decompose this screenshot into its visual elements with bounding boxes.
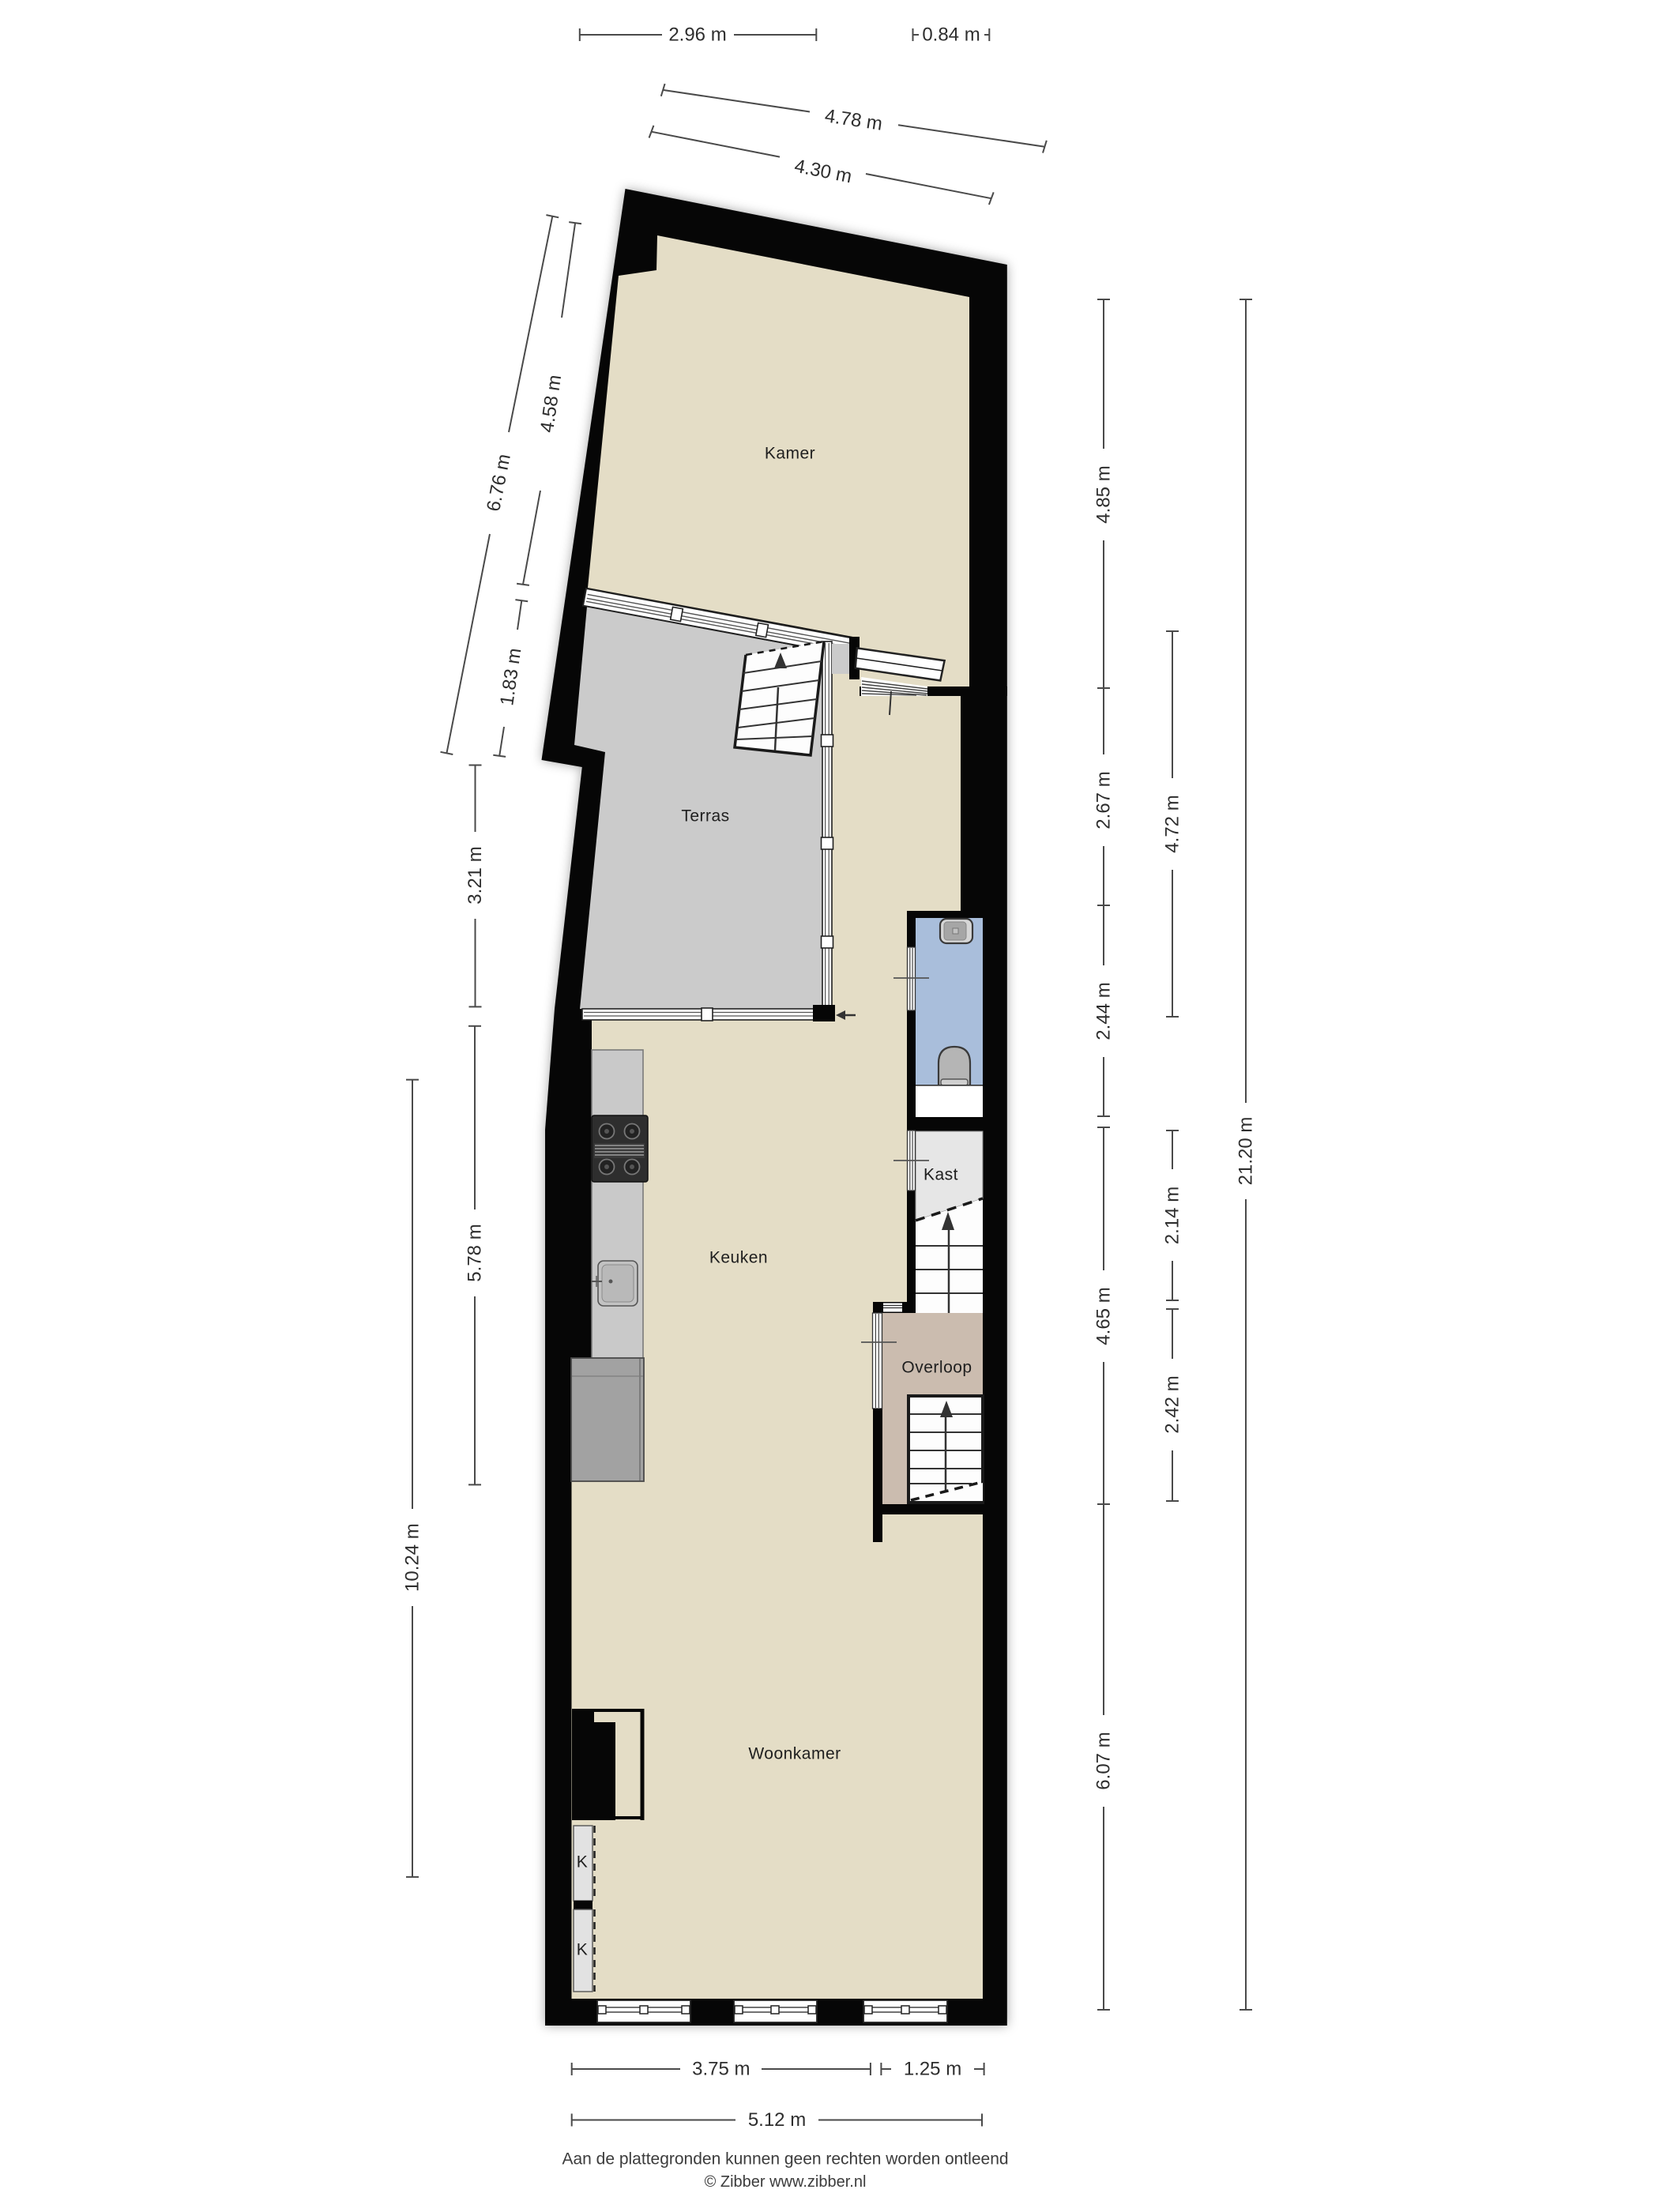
svg-text:© Zibber www.zibber.nl: © Zibber www.zibber.nl [705, 2173, 867, 2191]
svg-text:1.25 m: 1.25 m [904, 2059, 961, 2080]
svg-text:5.12 m: 5.12 m [748, 2109, 806, 2131]
svg-text:K: K [577, 1853, 589, 1872]
svg-text:0.84 m: 0.84 m [922, 24, 980, 46]
svg-text:5.78 m: 5.78 m [465, 1224, 486, 1281]
svg-text:Aan de plattegronden kunnen ge: Aan de plattegronden kunnen geen rechten… [562, 2150, 1008, 2169]
svg-text:Kamer: Kamer [765, 445, 815, 463]
svg-text:Terras: Terras [681, 807, 729, 826]
svg-text:6.07 m: 6.07 m [1093, 1732, 1115, 1789]
svg-text:2.14 m: 2.14 m [1162, 1187, 1183, 1244]
svg-text:Keuken: Keuken [709, 1249, 768, 1267]
svg-text:Overloop: Overloop [901, 1359, 972, 1377]
svg-text:Kast: Kast [924, 1166, 958, 1184]
svg-text:4.65 m: 4.65 m [1093, 1287, 1115, 1345]
svg-text:2.96 m: 2.96 m [668, 24, 726, 46]
svg-text:10.24 m: 10.24 m [402, 1523, 423, 1592]
svg-text:4.72 m: 4.72 m [1162, 795, 1183, 852]
svg-text:K: K [577, 1941, 589, 1959]
svg-text:2.42 m: 2.42 m [1162, 1375, 1183, 1433]
svg-text:2.67 m: 2.67 m [1093, 771, 1115, 829]
svg-text:Woonkamer: Woonkamer [748, 1745, 841, 1763]
svg-text:3.21 m: 3.21 m [465, 846, 486, 904]
svg-text:3.75 m: 3.75 m [692, 2059, 750, 2080]
svg-text:2.44 m: 2.44 m [1093, 982, 1115, 1040]
svg-text:4.85 m: 4.85 m [1093, 465, 1115, 523]
svg-text:21.20 m: 21.20 m [1236, 1117, 1257, 1186]
